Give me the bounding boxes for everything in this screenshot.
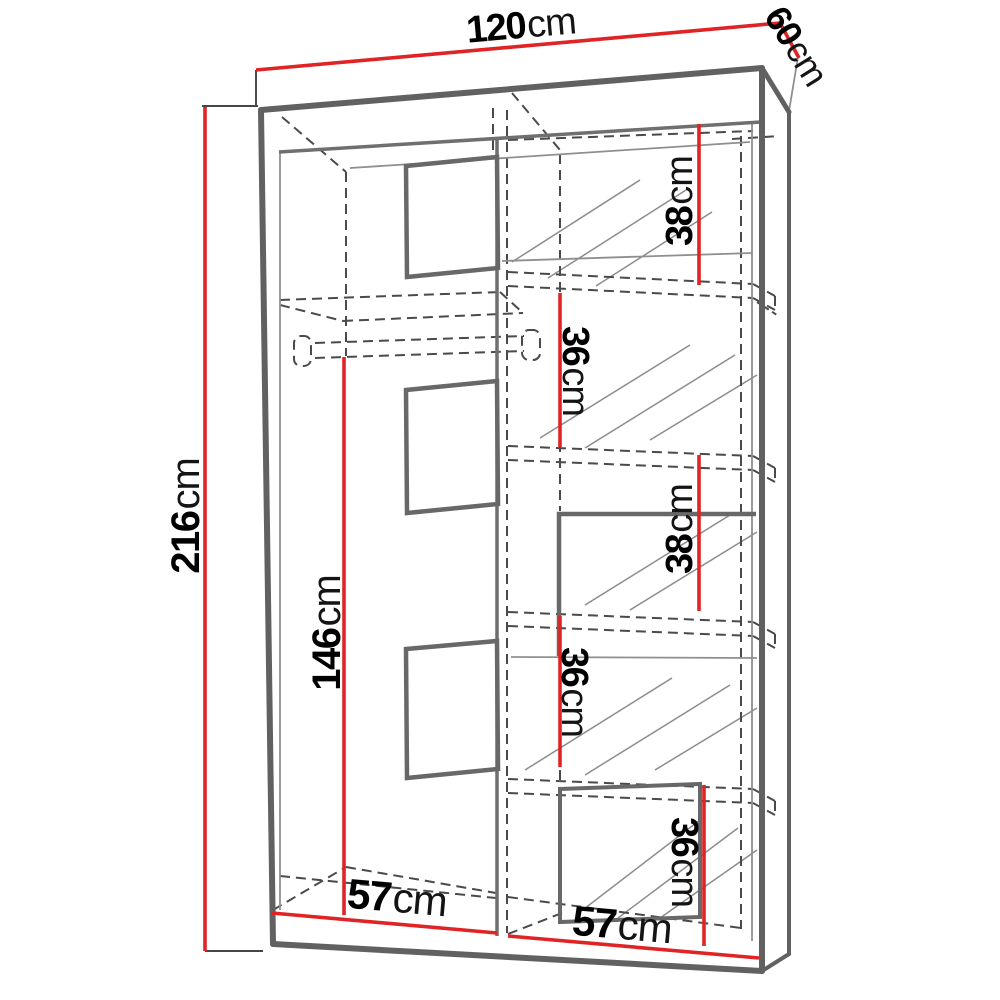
- front-top-edge: [261, 68, 762, 110]
- dim-label-shelf-36-lower: 36cm: [555, 647, 593, 737]
- front-left-edge: [261, 110, 273, 944]
- cabinet-outline: [261, 68, 789, 971]
- mirror-hatching: [512, 180, 757, 918]
- diagram-linework: [0, 0, 1000, 1000]
- top-slab-outline: [202, 70, 263, 951]
- left-door-panel-2: [406, 381, 498, 513]
- dim-label-width-120: 120cm: [465, 2, 577, 49]
- side-bottom-edge: [762, 954, 789, 971]
- shelves-hidden: [508, 272, 775, 815]
- dim-label-shelf-38-mid: 38cm: [661, 484, 699, 574]
- dim-label-height-216: 216cm: [166, 458, 206, 574]
- front-bottom-edge: [273, 944, 762, 971]
- dim-label-shelf-38-top: 38cm: [661, 156, 699, 246]
- dim-label-shelf-36-bottom: 36cm: [665, 817, 703, 907]
- dim-label-hanging-146: 146cm: [307, 575, 347, 691]
- thin-structure-lines: [280, 23, 798, 941]
- left-door-panel-1: [406, 157, 498, 277]
- side-top-edge: [762, 68, 789, 112]
- dim-label-shelf-36-upper: 36cm: [556, 326, 594, 416]
- hanging-rod: [294, 330, 540, 366]
- dimension-lines: [205, 23, 799, 958]
- dim-label-57-left: 57cm: [346, 873, 449, 924]
- mirror-panel-frame: [559, 514, 756, 656]
- wardrobe-dimension-diagram: 120cm 60cm 216cm 146cm 38cm 36cm 38cm 36…: [0, 0, 1000, 1000]
- dim-label-57-right: 57cm: [571, 900, 674, 951]
- interior-ceiling-line: [279, 122, 761, 152]
- left-door-panel-3: [406, 641, 498, 778]
